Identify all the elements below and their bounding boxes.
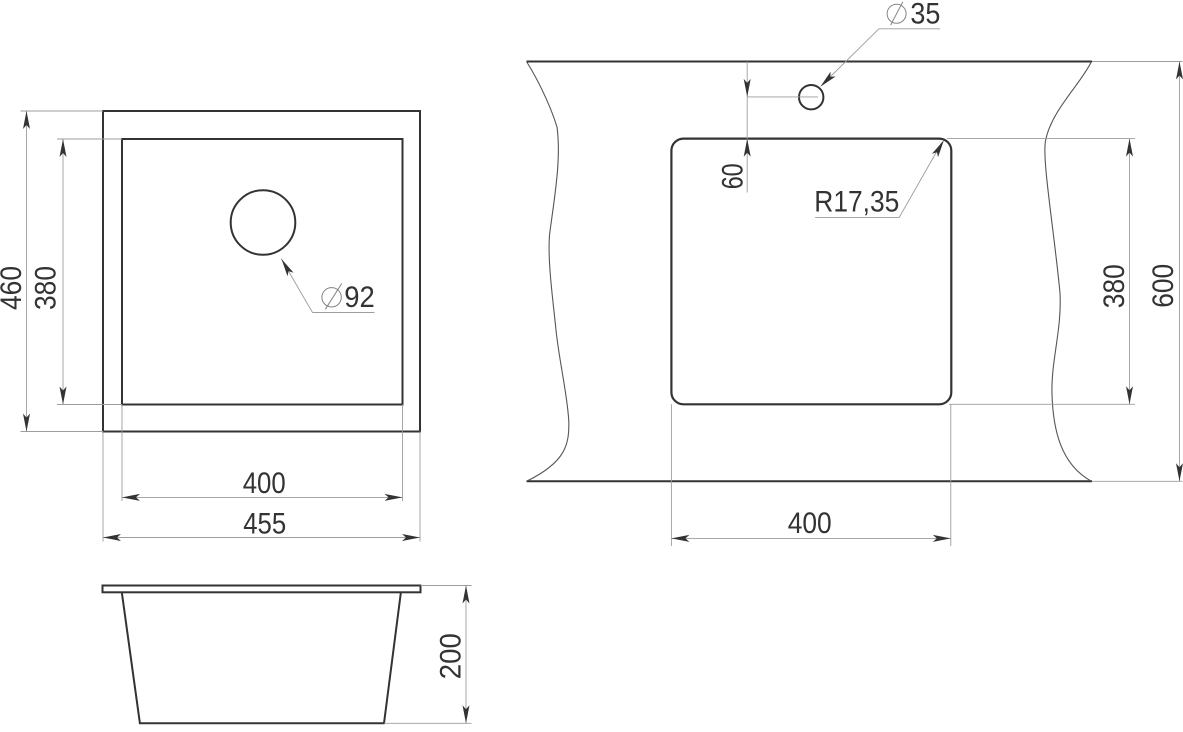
svg-text:92: 92 — [344, 281, 375, 314]
svg-text:460: 460 — [0, 266, 28, 310]
svg-text:380: 380 — [1098, 264, 1131, 308]
svg-text:380: 380 — [30, 266, 63, 310]
svg-text:60: 60 — [716, 163, 749, 189]
svg-text:600: 600 — [1147, 264, 1180, 308]
svg-text:455: 455 — [243, 508, 286, 541]
svg-text:400: 400 — [243, 467, 286, 500]
svg-text:35: 35 — [910, 0, 940, 31]
svg-text:400: 400 — [788, 507, 832, 540]
svg-text:200: 200 — [434, 633, 467, 679]
svg-text:R17,35: R17,35 — [814, 186, 899, 219]
